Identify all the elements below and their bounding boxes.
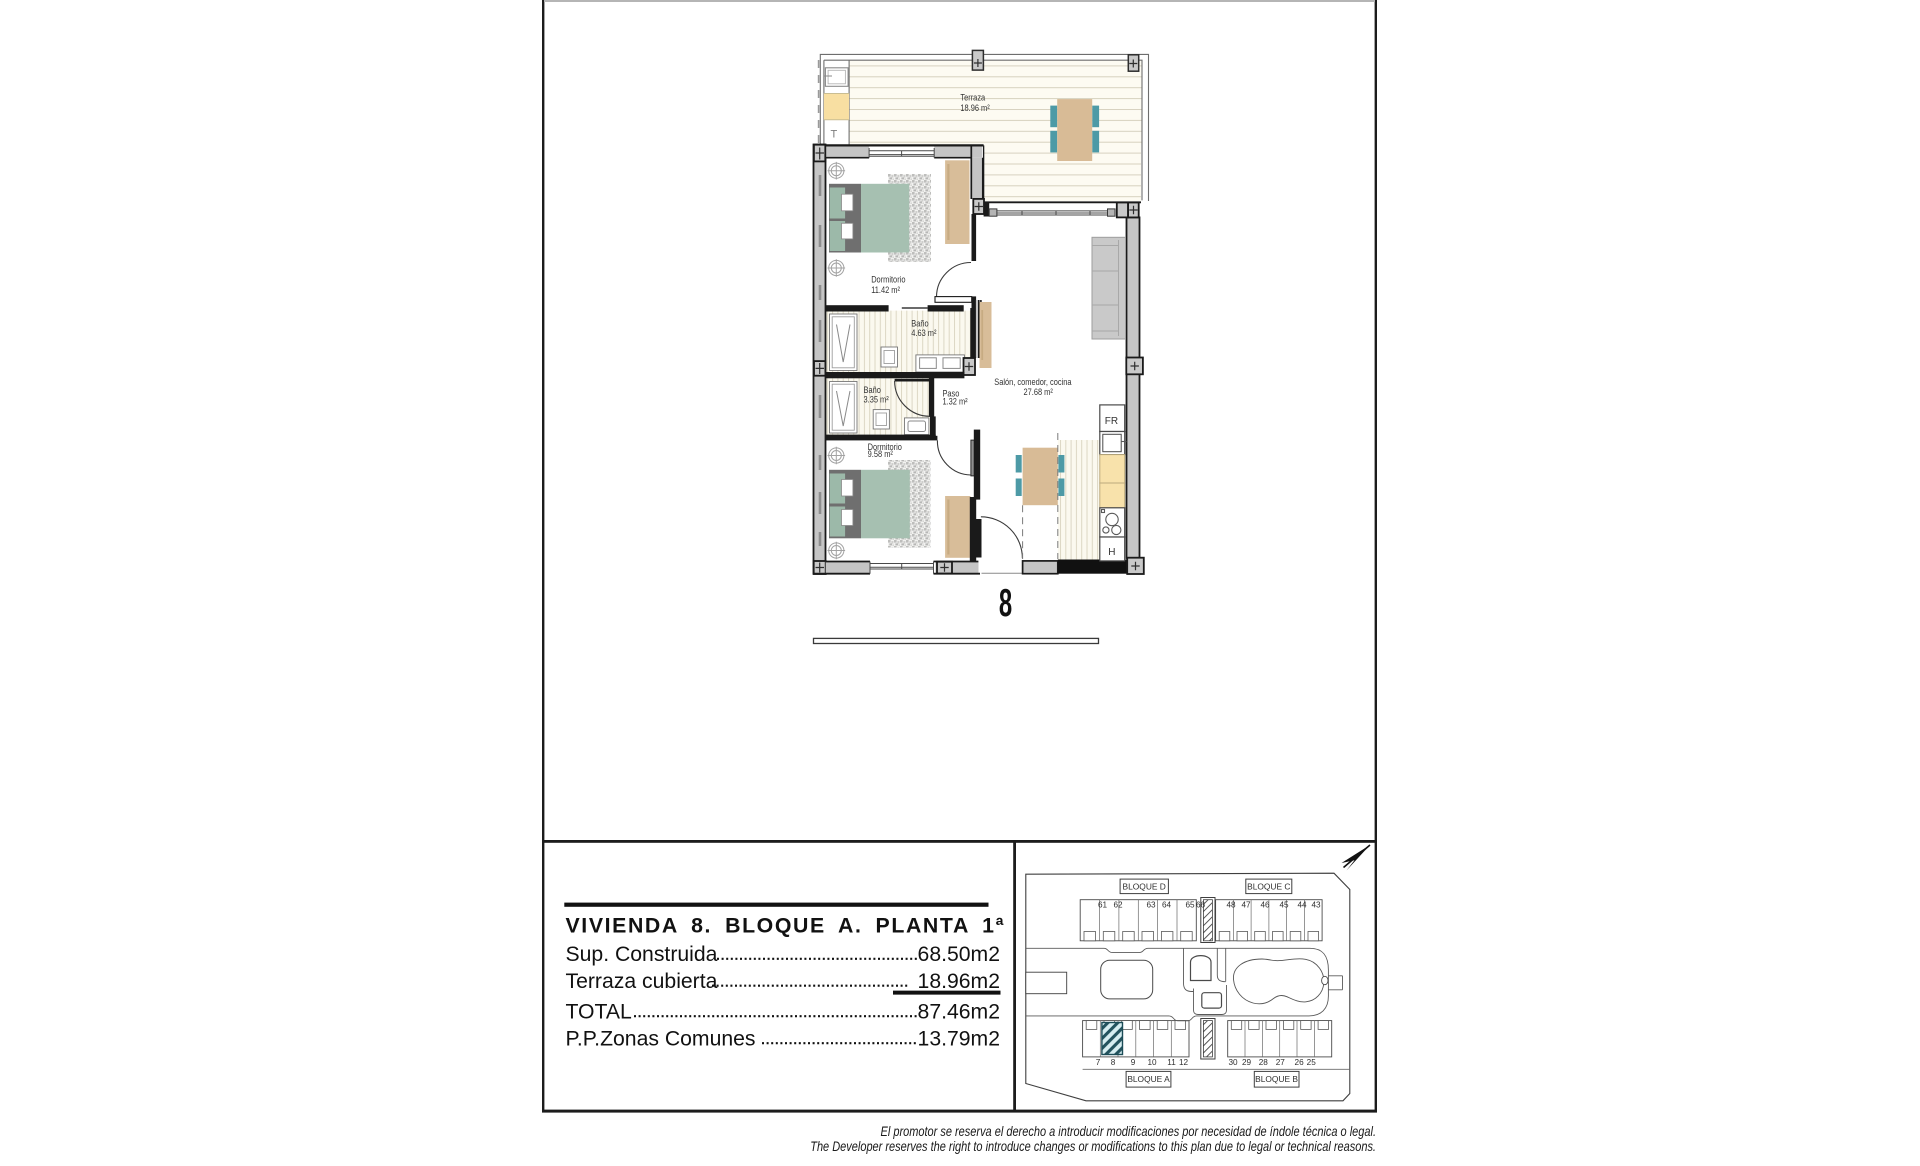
svg-text:9.58 m²: 9.58 m² [868, 448, 893, 459]
svg-text:FR: FR [1105, 416, 1118, 427]
svg-text:64: 64 [1162, 901, 1172, 910]
svg-text:9: 9 [1131, 1058, 1136, 1067]
svg-text:27.68 m²: 27.68 m² [1024, 386, 1053, 397]
svg-text:29: 29 [1242, 1058, 1252, 1067]
svg-text:65: 65 [1185, 901, 1195, 910]
svg-text:48: 48 [1226, 901, 1236, 910]
svg-text:11: 11 [1167, 1058, 1176, 1067]
svg-text:El promotor se reserva el dere: El promotor se reserva el derecho a intr… [880, 1124, 1376, 1140]
svg-text:87.46m2: 87.46m2 [918, 1001, 1000, 1024]
svg-text:44: 44 [1297, 901, 1307, 910]
svg-text:3.35 m²: 3.35 m² [864, 394, 889, 405]
svg-text:63: 63 [1146, 901, 1156, 910]
svg-text:28: 28 [1259, 1058, 1269, 1067]
svg-text:30: 30 [1228, 1058, 1238, 1067]
svg-text:H: H [1108, 547, 1115, 558]
svg-text:4.63 m²: 4.63 m² [911, 327, 936, 338]
svg-text:1.32 m²: 1.32 m² [942, 396, 967, 407]
svg-text:26: 26 [1295, 1058, 1305, 1067]
svg-text:The Developer reserves the rig: The Developer reserves the right to intr… [810, 1139, 1376, 1155]
svg-text:TOTAL: TOTAL [566, 1001, 633, 1024]
svg-text:25: 25 [1307, 1058, 1317, 1067]
svg-text:10: 10 [1147, 1058, 1157, 1067]
svg-text:Terraza cubierta: Terraza cubierta [566, 970, 718, 993]
svg-text:Sup. Construida: Sup. Construida [566, 943, 718, 966]
svg-text:68.50m2: 68.50m2 [918, 943, 1000, 966]
svg-text:11.42 m²: 11.42 m² [871, 284, 900, 295]
svg-text:13.79m2: 13.79m2 [918, 1028, 1000, 1051]
svg-text:BLOQUE C: BLOQUE C [1247, 882, 1290, 892]
svg-text:8: 8 [999, 581, 1012, 624]
svg-text:BLOQUE B: BLOQUE B [1255, 1074, 1298, 1084]
svg-text:P.P.Zonas Comunes: P.P.Zonas Comunes [566, 1028, 756, 1051]
svg-text:66: 66 [1196, 901, 1206, 910]
svg-text:T: T [831, 129, 838, 141]
svg-text:18.96 m²: 18.96 m² [960, 102, 989, 113]
svg-text:61: 61 [1098, 901, 1108, 910]
svg-text:Dormitorio: Dormitorio [871, 273, 906, 284]
svg-text:47: 47 [1241, 901, 1251, 910]
svg-text:46: 46 [1260, 901, 1270, 910]
svg-text:18.96m2: 18.96m2 [918, 970, 1000, 993]
svg-text:62: 62 [1113, 901, 1123, 910]
svg-text:Terraza: Terraza [960, 91, 985, 102]
svg-text:12: 12 [1179, 1058, 1189, 1067]
svg-text:45: 45 [1279, 901, 1289, 910]
svg-text:BLOQUE D: BLOQUE D [1123, 882, 1166, 892]
svg-text:BLOQUE A: BLOQUE A [1127, 1074, 1170, 1084]
svg-text:43: 43 [1311, 901, 1321, 910]
svg-text:7: 7 [1096, 1058, 1101, 1067]
svg-text:8: 8 [1111, 1058, 1116, 1067]
svg-text:VIVIENDA 8. BLOQUE A. PLANTA 1: VIVIENDA 8. BLOQUE A. PLANTA 1ª [566, 914, 1006, 938]
svg-text:27: 27 [1276, 1058, 1286, 1067]
